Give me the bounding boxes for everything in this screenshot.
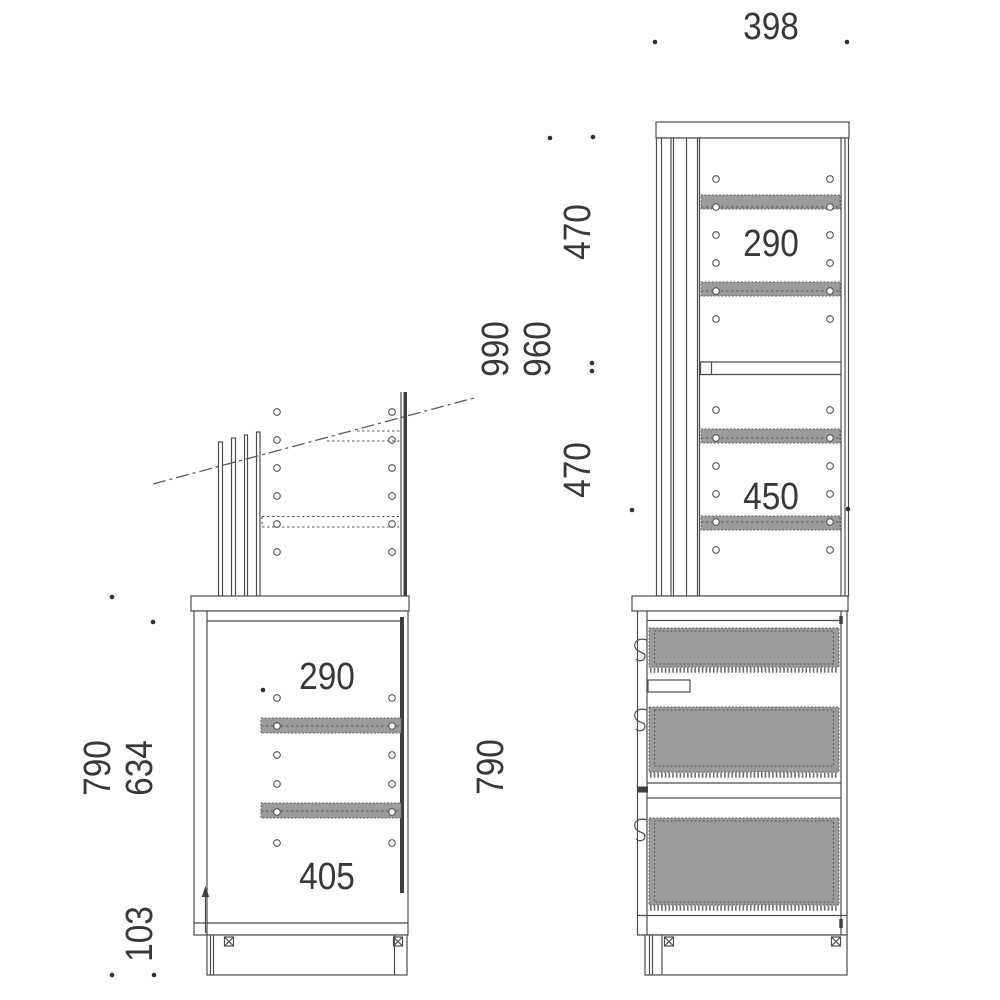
dim-side-shelf-space-bottom: 405 bbox=[299, 858, 355, 896]
front-view-lower-cabinet bbox=[635, 611, 847, 935]
side-view-base bbox=[207, 935, 407, 975]
front-view-counter bbox=[632, 596, 848, 611]
shelf-board bbox=[701, 429, 840, 443]
handle-profiles bbox=[635, 639, 647, 840]
dim-side-shelf-space-top: 290 bbox=[299, 658, 355, 696]
hutch-top-cap bbox=[656, 122, 849, 138]
drawer-rail bbox=[648, 680, 690, 692]
drawer-front bbox=[649, 628, 839, 670]
dim-front-shelf-space-top: 290 bbox=[743, 225, 799, 263]
drawer-front bbox=[649, 707, 839, 775]
dim-side-lower-height: 790 bbox=[79, 740, 117, 796]
dim-front-shelf-space-bottom: 450 bbox=[743, 478, 799, 516]
drawing-linework bbox=[0, 0, 1000, 1000]
dim-front-upper-gap-top: 470 bbox=[559, 204, 597, 260]
drawer-front bbox=[649, 818, 839, 908]
front-view-hutch bbox=[656, 122, 849, 596]
dim-front-width: 398 bbox=[743, 8, 799, 46]
side-view-back-panel bbox=[401, 392, 407, 596]
dim-front-upper-gap-bottom: 470 bbox=[559, 442, 597, 498]
shelf-board bbox=[701, 282, 840, 296]
dim-front-lower-height: 790 bbox=[472, 739, 510, 795]
dim-side-base-height: 103 bbox=[121, 906, 159, 962]
dim-side-height-max: 990 bbox=[477, 321, 515, 377]
projection-line bbox=[153, 398, 474, 484]
dim-side-height-min: 960 bbox=[519, 321, 557, 377]
drawer-divider bbox=[637, 783, 841, 798]
furniture-dimension-drawing: 398 470 470 290 450 790 990 960 790 634 … bbox=[0, 0, 1000, 1000]
front-view bbox=[632, 122, 849, 975]
dim-side-inner-height: 634 bbox=[121, 740, 159, 796]
shelf-board bbox=[701, 516, 840, 530]
side-view-counter bbox=[191, 596, 409, 611]
side-view-hidden-shelf-lines bbox=[262, 431, 400, 527]
front-view-base bbox=[645, 935, 847, 975]
